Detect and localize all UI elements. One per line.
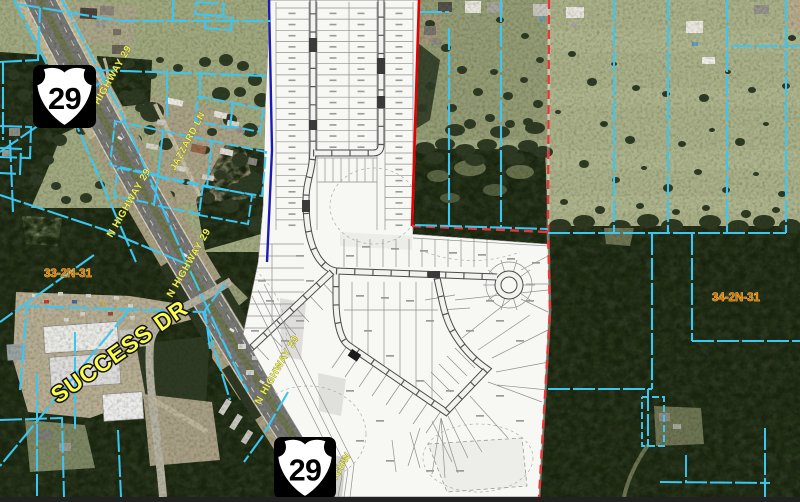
svg-text:33-2N-31: 33-2N-31 [44,268,93,280]
svg-text:29: 29 [289,453,322,487]
svg-text:29: 29 [48,81,82,116]
svg-text:34-2N-31: 34-2N-31 [712,292,761,304]
